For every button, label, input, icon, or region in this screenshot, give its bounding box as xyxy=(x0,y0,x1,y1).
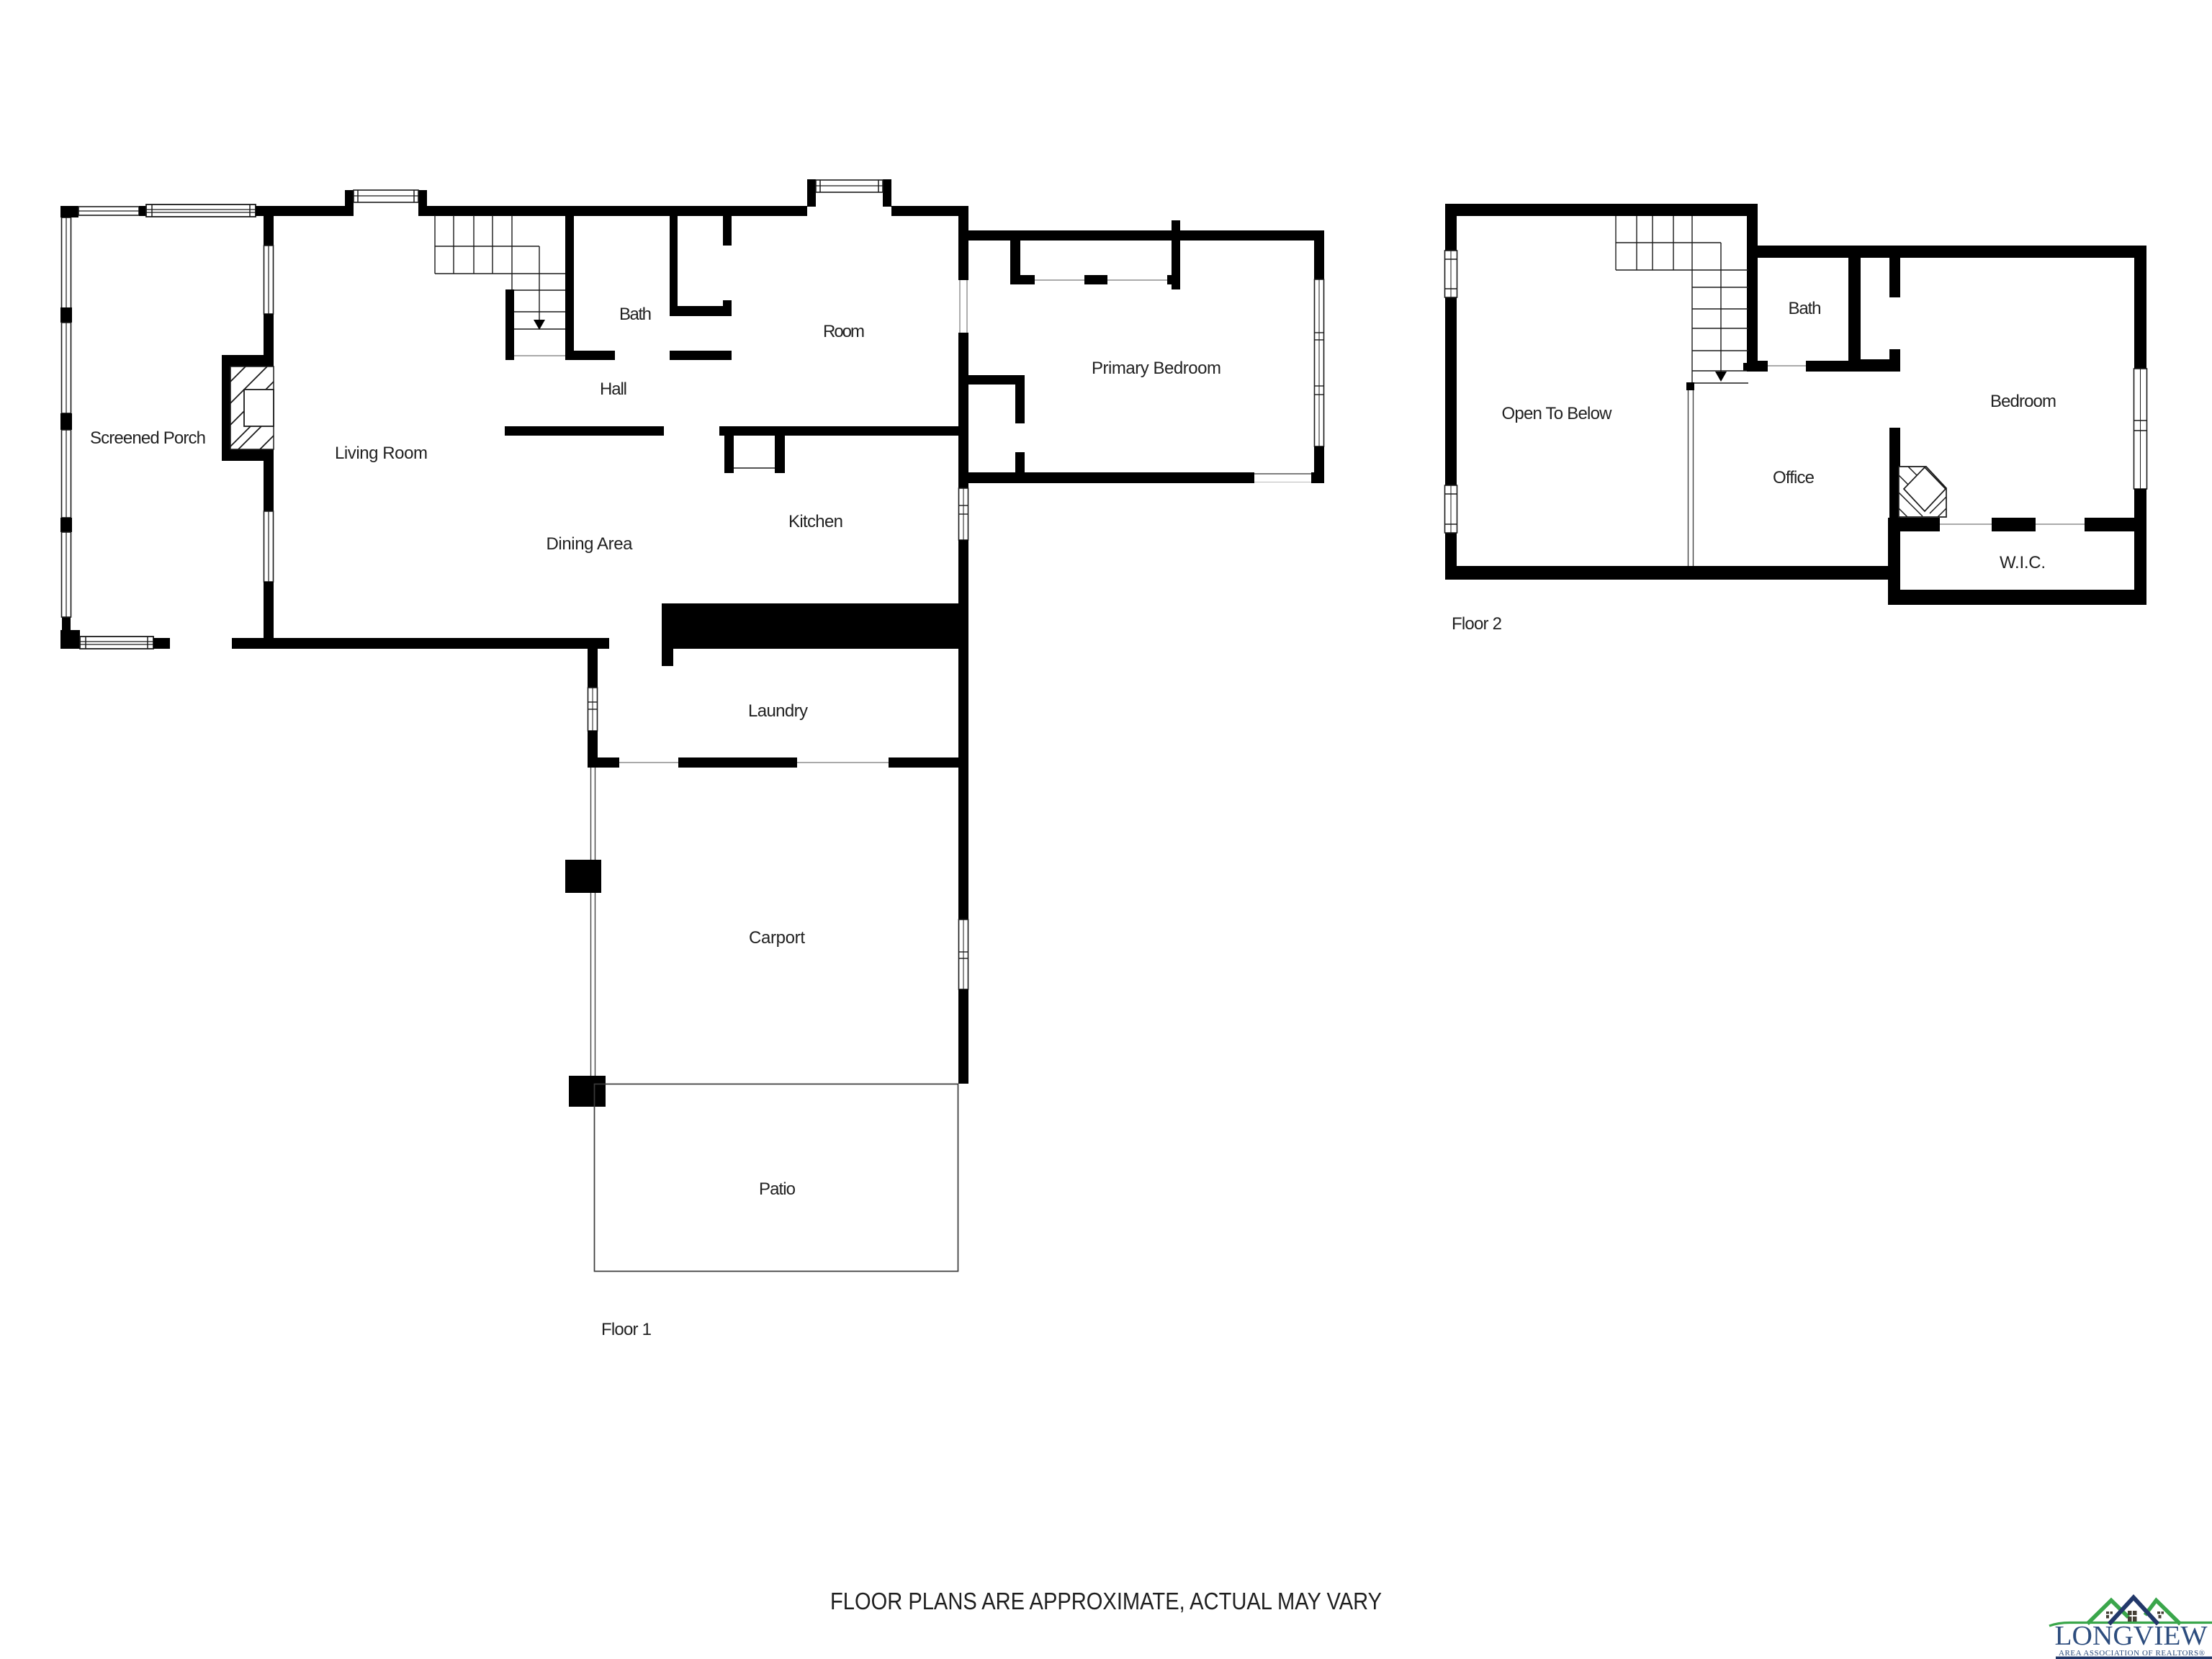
svg-text:Open To Below: Open To Below xyxy=(1502,404,1613,423)
svg-text:Floor 2: Floor 2 xyxy=(1452,614,1502,634)
svg-text:Bedroom: Bedroom xyxy=(1990,392,2056,411)
svg-text:Primary Bedroom: Primary Bedroom xyxy=(1092,359,1221,378)
svg-text:Room: Room xyxy=(823,322,865,341)
svg-text:Bath: Bath xyxy=(619,305,652,324)
svg-text:LONGVIEW: LONGVIEW xyxy=(2055,1621,2208,1651)
svg-text:Bath: Bath xyxy=(1789,299,1822,318)
svg-text:Laundry: Laundry xyxy=(748,701,808,721)
svg-text:Dining Area: Dining Area xyxy=(547,534,634,554)
svg-text:AREA ASSOCIATION OF REALTORS®: AREA ASSOCIATION OF REALTORS® xyxy=(2059,1649,2205,1658)
svg-text:Living Room: Living Room xyxy=(335,444,428,463)
svg-text:W.I.C.: W.I.C. xyxy=(2000,553,2046,572)
svg-text:Office: Office xyxy=(1773,468,1815,487)
svg-text:Kitchen: Kitchen xyxy=(788,512,843,531)
svg-text:Floor 1: Floor 1 xyxy=(601,1320,652,1339)
svg-text:Carport: Carport xyxy=(749,928,805,948)
svg-text:Patio: Patio xyxy=(759,1179,796,1199)
svg-text:FLOOR PLANS ARE APPROXIMATE, A: FLOOR PLANS ARE APPROXIMATE, ACTUAL MAY … xyxy=(830,1588,1382,1615)
svg-text:Screened Porch: Screened Porch xyxy=(90,428,206,448)
svg-text:Hall: Hall xyxy=(600,379,627,399)
